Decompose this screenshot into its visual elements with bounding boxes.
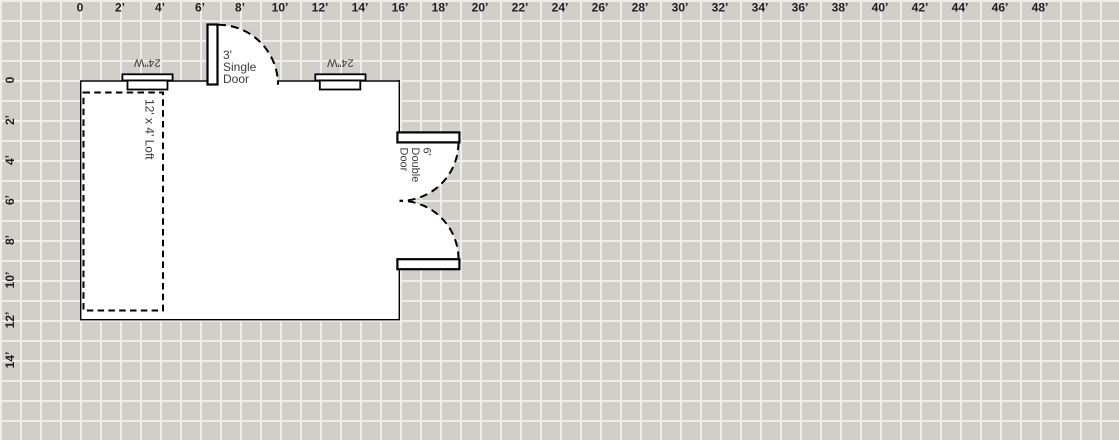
- svg-text:24’: 24’: [552, 1, 569, 15]
- svg-text:32’: 32’: [712, 1, 729, 15]
- svg-text:22’: 22’: [512, 1, 529, 15]
- svg-text:18’: 18’: [432, 1, 449, 15]
- svg-text:8’: 8’: [3, 235, 17, 245]
- svg-text:10’: 10’: [272, 1, 289, 15]
- svg-text:Door: Door: [398, 148, 410, 172]
- svg-text:34’: 34’: [752, 1, 769, 15]
- svg-text:42’: 42’: [912, 1, 929, 15]
- svg-text:36’: 36’: [792, 1, 809, 15]
- svg-text:10’: 10’: [3, 272, 17, 289]
- svg-text:38’: 38’: [832, 1, 849, 15]
- svg-text:0: 0: [77, 1, 84, 15]
- svg-text:2’: 2’: [3, 115, 17, 125]
- svg-text:48’: 48’: [1032, 1, 1049, 15]
- svg-text:14’: 14’: [3, 352, 17, 369]
- svg-text:4’: 4’: [3, 155, 17, 165]
- svg-text:8’: 8’: [235, 1, 245, 15]
- svg-text:28’: 28’: [632, 1, 649, 15]
- svg-text:12' x 4' Loft: 12' x 4' Loft: [143, 99, 157, 160]
- svg-text:0: 0: [3, 76, 17, 83]
- svg-text:14’: 14’: [352, 1, 369, 15]
- svg-text:4’: 4’: [155, 1, 165, 15]
- svg-text:24"W: 24"W: [133, 56, 160, 68]
- svg-text:40’: 40’: [872, 1, 889, 15]
- svg-text:16’: 16’: [392, 1, 409, 15]
- svg-text:12’: 12’: [312, 1, 329, 15]
- svg-text:6’: 6’: [3, 195, 17, 205]
- svg-text:6’: 6’: [195, 1, 205, 15]
- svg-text:24"W: 24"W: [327, 56, 354, 68]
- svg-text:44’: 44’: [952, 1, 969, 15]
- svg-text:2’: 2’: [115, 1, 125, 15]
- svg-text:Double: Double: [409, 148, 421, 183]
- svg-text:6': 6': [421, 148, 433, 156]
- svg-text:46’: 46’: [992, 1, 1009, 15]
- svg-text:20’: 20’: [472, 1, 489, 15]
- svg-text:30’: 30’: [672, 1, 689, 15]
- svg-text:12’: 12’: [3, 312, 17, 329]
- svg-text:26’: 26’: [592, 1, 609, 15]
- svg-text:Door: Door: [223, 72, 249, 86]
